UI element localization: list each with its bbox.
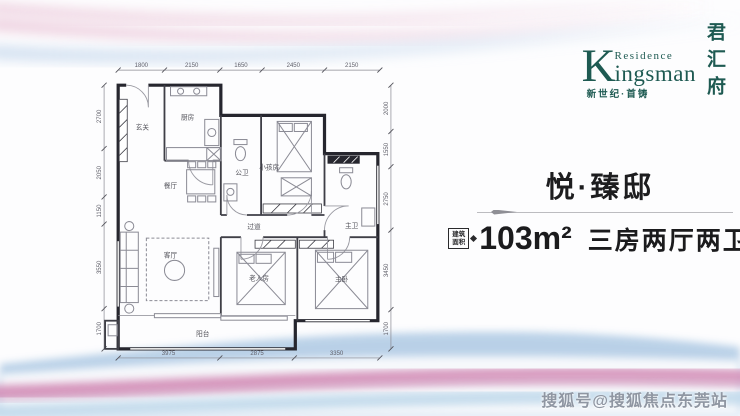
- dimension-labels-right: 2000 1550 2750 3450 1700: [384, 101, 390, 335]
- dimension-lines: [104, 70, 391, 358]
- unit-title: 悦·臻邸: [450, 164, 740, 206]
- dim-label: 1700: [97, 321, 103, 335]
- floorplan: 1800 2150 1650 2450 2150 3975 2875 3350 …: [90, 54, 402, 370]
- dim-label: 2000: [384, 101, 390, 115]
- room-label-entry: 玄关: [136, 122, 150, 131]
- room-label-kitchen: 厨房: [181, 112, 195, 121]
- dim-label: 1650: [234, 63, 248, 69]
- brand-ingsman-text: ingsman: [615, 62, 696, 85]
- brand-tagline: 新世纪·首铸: [548, 86, 688, 100]
- dim-label: 3450: [384, 263, 390, 277]
- floorplan-doors: [126, 85, 349, 320]
- brand-vertical-name: 君汇府: [705, 22, 724, 104]
- dim-label: 3550: [97, 260, 103, 274]
- room-label-balcony: 阳台: [196, 329, 210, 338]
- dim-label: 2050: [97, 165, 103, 179]
- room-label-master-bath: 主卫: [345, 221, 359, 230]
- dim-label: 3350: [330, 351, 344, 357]
- room-label-living: 客厅: [164, 250, 178, 259]
- dim-label: 2750: [384, 192, 390, 206]
- layout-text: 三房两厅两卫: [588, 221, 740, 257]
- area-label-line1: 建筑: [452, 231, 465, 239]
- dim-label: 2700: [97, 109, 103, 123]
- watermark: 搜狐号@搜狐焦点东莞站: [541, 387, 728, 411]
- dim-label: 1150: [97, 204, 103, 218]
- room-label-corridor: 过道: [247, 222, 261, 231]
- area-label-line2: 面积: [452, 239, 465, 247]
- dim-label: 2875: [250, 351, 264, 357]
- dim-label: 1700: [384, 321, 390, 335]
- room-label-dining: 餐厅: [164, 181, 178, 190]
- area-value: 103m²: [479, 220, 572, 257]
- dim-label: 1550: [384, 142, 390, 156]
- dimension-labels-bottom: 3975 2875 3350: [162, 351, 344, 357]
- room-label-master-bed: 主卧: [335, 274, 349, 283]
- dim-label: 2150: [345, 63, 359, 69]
- unit-info-row: 建筑 面积 103m² 三房两厅两卫: [448, 220, 740, 257]
- dim-label: 1800: [135, 63, 149, 69]
- dim-label: 3975: [162, 351, 176, 357]
- diamond-bullet: [470, 235, 477, 242]
- divider-diamond: [491, 210, 517, 215]
- divider-line: [477, 212, 733, 213]
- brand-logo: K Residence ingsman 君汇府 新世纪·首铸: [504, 22, 724, 104]
- room-label-elder-room: 老人房: [249, 273, 269, 282]
- dim-label: 2150: [185, 63, 199, 69]
- dim-label: 2450: [287, 63, 301, 69]
- dimension-labels-left: 2700 2050 1150 3550 1700: [97, 109, 103, 335]
- page: 1800 2150 1650 2450 2150 3975 2875 3350 …: [0, 0, 740, 416]
- room-label-public-bath: 公卫: [235, 169, 249, 177]
- dimension-labels-top: 1800 2150 1650 2450 2150: [135, 63, 359, 69]
- room-label-kids-room: 小孩房: [259, 163, 279, 172]
- area-label-box: 建筑 面积: [448, 228, 469, 249]
